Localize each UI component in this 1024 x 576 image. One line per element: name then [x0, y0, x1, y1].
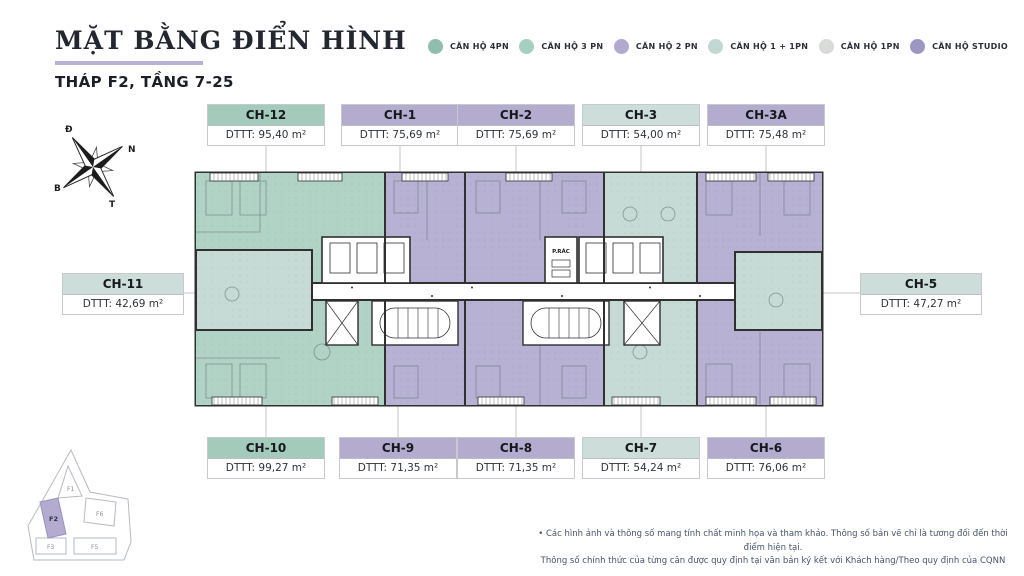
page-title: MẶT BẰNG ĐIỂN HÌNH	[55, 26, 407, 55]
page-subtitle: THÁP F2, TẦNG 7-25	[55, 73, 407, 91]
unit-code: CH-8	[458, 438, 574, 459]
legend-item-studio: CĂN HỘ STUDIO	[910, 39, 1008, 54]
legend-label: CĂN HỘ 1 + 1PN	[730, 42, 808, 51]
legend-label: CĂN HỘ 4PN	[450, 42, 509, 51]
corridor	[312, 283, 735, 300]
legend-label: CĂN HỘ 2 PN	[636, 42, 698, 51]
unit-code: CH-10	[208, 438, 324, 459]
legend-item-4pn: CĂN HỘ 4PN	[428, 39, 509, 54]
unit-label-ch8: CH-8 DTTT: 71,35 m²	[457, 437, 575, 479]
unit-area-text: DTTT: 47,27 m²	[861, 295, 981, 314]
unit-label-ch6: CH-6 DTTT: 76,06 m²	[707, 437, 825, 479]
legend-item-1pn: CĂN HỘ 1PN	[819, 39, 900, 54]
unit-label-ch11: CH-11 DTTT: 42,69 m²	[62, 273, 184, 315]
legend: CĂN HỘ 4PN CĂN HỘ 3 PN CĂN HỘ 2 PN CĂN H…	[428, 39, 1008, 54]
site-label-f2: F2	[49, 515, 58, 523]
legend-swatch-3pn	[519, 39, 534, 54]
unit-area-text: DTTT: 42,69 m²	[63, 295, 183, 314]
unit-label-ch1: CH-1 DTTT: 75,69 m²	[341, 104, 459, 146]
legend-item-3pn: CĂN HỘ 3 PN	[519, 39, 603, 54]
compass-label-north: B	[54, 184, 61, 194]
site-label-f3: F3	[47, 544, 54, 551]
floor-plan-page: MẶT BẰNG ĐIỂN HÌNH THÁP F2, TẦNG 7-25 CĂ…	[0, 0, 1024, 576]
legend-label: CĂN HỘ 3 PN	[541, 42, 603, 51]
unit-code: CH-1	[342, 105, 458, 126]
unit-area-text: DTTT: 71,35 m²	[340, 459, 456, 478]
unit-label-ch9: CH-9 DTTT: 71,35 m²	[339, 437, 457, 479]
unit-area-text: DTTT: 95,40 m²	[208, 126, 324, 145]
site-label-f1: F1	[67, 486, 74, 493]
unit-code: CH-11	[63, 274, 183, 295]
legend-item-2pn: CĂN HỘ 2 PN	[614, 39, 698, 54]
unit-code: CH-5	[861, 274, 981, 295]
legend-swatch-studio	[910, 39, 925, 54]
unit-code: CH-3	[583, 105, 699, 126]
legend-swatch-1plus1pn	[708, 39, 723, 54]
unit-label-ch3a: CH-3A DTTT: 75,48 m²	[707, 104, 825, 146]
unit-area-text: DTTT: 76,06 m²	[708, 459, 824, 478]
unit-label-ch3: CH-3 DTTT: 54,00 m²	[582, 104, 700, 146]
unit-area-text: DTTT: 54,00 m²	[583, 126, 699, 145]
site-label-f5: F5	[91, 544, 98, 551]
legend-swatch-4pn	[428, 39, 443, 54]
unit-area-text: DTTT: 99,27 m²	[208, 459, 324, 478]
unit-area-text: DTTT: 75,48 m²	[708, 126, 824, 145]
legend-label: CĂN HỘ STUDIO	[932, 42, 1008, 51]
unit-area-text: DTTT: 75,69 m²	[458, 126, 574, 145]
compass-label-east: Đ	[65, 125, 73, 135]
unit-label-ch5: CH-5 DTTT: 47,27 m²	[860, 273, 982, 315]
page-header: MẶT BẰNG ĐIỂN HÌNH THÁP F2, TẦNG 7-25	[55, 26, 407, 91]
site-key-plan: F1 F6 F3 F5 F2	[24, 446, 139, 568]
unit-label-ch12: CH-12 DTTT: 95,40 m²	[207, 104, 325, 146]
compass-rose-icon: Đ N B T	[48, 112, 148, 217]
disclaimer: • Các hình ảnh và thông số mang tính chấ…	[534, 528, 1012, 568]
unit-code: CH-6	[708, 438, 824, 459]
unit-code: CH-7	[583, 438, 699, 459]
unit-area-text: DTTT: 71,35 m²	[458, 459, 574, 478]
trash-room-label: P.RÁC	[552, 248, 570, 255]
unit-label-ch10: CH-10 DTTT: 99,27 m²	[207, 437, 325, 479]
disclaimer-line-2: Thông số chính thức của từng căn được qu…	[534, 555, 1012, 568]
unit-area-text: DTTT: 75,69 m²	[342, 126, 458, 145]
site-label-f6: F6	[96, 511, 103, 518]
legend-swatch-2pn	[614, 39, 629, 54]
unit-label-ch7: CH-7 DTTT: 54,24 m²	[582, 437, 700, 479]
unit-code: CH-9	[340, 438, 456, 459]
legend-label: CĂN HỘ 1PN	[841, 42, 900, 51]
unit-code: CH-12	[208, 105, 324, 126]
compass-label-south: N	[128, 145, 136, 155]
compass-label-west: T	[109, 200, 116, 210]
legend-item-1plus1pn: CĂN HỘ 1 + 1PN	[708, 39, 808, 54]
unit-label-ch2: CH-2 DTTT: 75,69 m²	[457, 104, 575, 146]
unit-code: CH-3A	[708, 105, 824, 126]
disclaimer-line-1: • Các hình ảnh và thông số mang tính chấ…	[534, 528, 1012, 554]
title-underline	[55, 61, 203, 65]
unit-area-text: DTTT: 54,24 m²	[583, 459, 699, 478]
unit-code: CH-2	[458, 105, 574, 126]
legend-swatch-1pn	[819, 39, 834, 54]
